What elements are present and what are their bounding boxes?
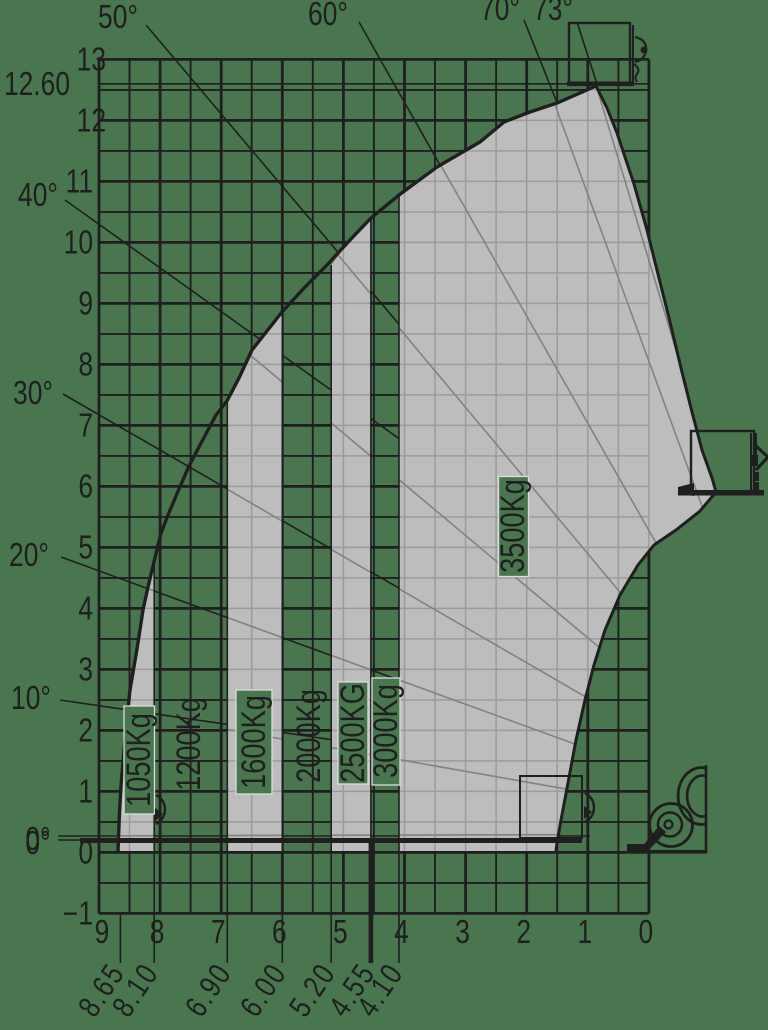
svg-text:40°: 40° <box>18 177 58 213</box>
svg-text:9: 9 <box>78 286 93 322</box>
svg-text:0: 0 <box>78 835 93 871</box>
svg-text:−1: −1 <box>63 896 93 932</box>
svg-text:8: 8 <box>150 914 165 950</box>
svg-text:12.60: 12.60 <box>4 66 70 102</box>
svg-text:6: 6 <box>272 914 287 950</box>
svg-text:3: 3 <box>78 652 93 688</box>
svg-text:8: 8 <box>78 347 93 383</box>
svg-text:9: 9 <box>95 914 110 950</box>
svg-text:2000Kg: 2000Kg <box>289 689 328 783</box>
svg-text:73°: 73° <box>533 0 573 28</box>
svg-text:13: 13 <box>77 42 106 78</box>
svg-text:7: 7 <box>211 914 226 950</box>
svg-text:4: 4 <box>78 591 93 627</box>
svg-text:11: 11 <box>66 164 93 200</box>
svg-text:12: 12 <box>77 103 106 139</box>
svg-text:1200Kg: 1200Kg <box>169 697 208 791</box>
svg-text:7: 7 <box>78 408 93 444</box>
svg-text:5: 5 <box>333 914 348 950</box>
svg-text:0: 0 <box>639 914 654 950</box>
svg-text:1: 1 <box>78 774 93 810</box>
svg-text:3500Kg: 3500Kg <box>493 479 532 573</box>
svg-text:10: 10 <box>64 225 93 261</box>
svg-text:1: 1 <box>577 914 592 950</box>
svg-text:1600Kg: 1600Kg <box>234 695 273 789</box>
svg-text:1050Kg: 1050Kg <box>119 713 158 807</box>
svg-text:70°: 70° <box>480 0 520 28</box>
svg-text:0°: 0° <box>25 825 50 861</box>
svg-text:50°: 50° <box>98 0 138 36</box>
svg-text:3000Kg: 3000Kg <box>366 684 405 778</box>
svg-text:4: 4 <box>394 914 409 950</box>
svg-text:30°: 30° <box>13 375 53 411</box>
svg-text:2: 2 <box>78 713 93 749</box>
svg-text:60°: 60° <box>308 0 348 33</box>
svg-text:5: 5 <box>78 530 93 566</box>
svg-text:20°: 20° <box>9 537 49 573</box>
svg-text:10°: 10° <box>11 680 51 716</box>
svg-text:2: 2 <box>516 914 531 950</box>
svg-text:6: 6 <box>78 469 93 505</box>
svg-text:3: 3 <box>455 914 470 950</box>
